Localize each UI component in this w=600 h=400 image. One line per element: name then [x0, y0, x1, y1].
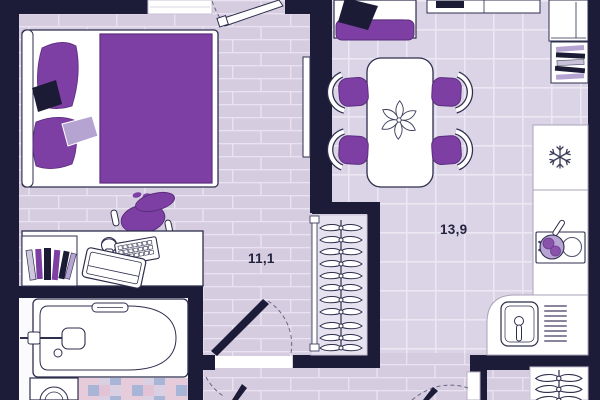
washing-machine	[30, 378, 78, 400]
burner	[563, 238, 582, 257]
wall-right	[588, 0, 600, 400]
dining-table	[367, 58, 433, 187]
wall-bathroom-top	[18, 286, 203, 298]
bathroom-checker-tiles	[76, 378, 188, 400]
bed-headboard	[22, 30, 33, 187]
wall-left	[0, 0, 19, 400]
wall-bathroom-right	[188, 286, 203, 400]
bathtub	[20, 299, 188, 377]
wall-room-divider	[310, 14, 332, 213]
wall-closet-right	[367, 202, 380, 368]
wall-top-left	[0, 0, 148, 14]
tv-icon	[436, 1, 464, 8]
room-area-label-11: 11,1	[248, 251, 275, 266]
bed-sheet-fold	[76, 33, 102, 184]
wall-closet-bottom	[293, 355, 379, 368]
coat-rack	[530, 367, 588, 400]
doorway-threshold	[215, 356, 292, 368]
bathtub-drain	[54, 349, 62, 357]
tv-stand	[427, 0, 540, 13]
hallway-closet	[310, 215, 367, 355]
sofa	[334, 0, 416, 40]
room-area-label-13: 13,9	[440, 222, 467, 237]
hall-door-panel	[467, 372, 480, 400]
closet-rail	[312, 222, 317, 348]
bed-blanket	[100, 34, 212, 183]
floor-plan-canvas: 11,1 13,9	[0, 0, 600, 400]
kitchen-sink-unit	[487, 295, 588, 355]
fridge	[533, 125, 588, 190]
sink-faucet	[515, 317, 524, 326]
wardrobe	[549, 0, 588, 41]
bookshelf	[551, 42, 588, 83]
wall-door-stub	[203, 355, 215, 370]
desk	[22, 231, 203, 289]
bed	[22, 30, 218, 187]
floor-plan: 11,1 13,9	[0, 0, 600, 400]
wall-mirror	[303, 57, 310, 157]
wall-top-mid	[285, 0, 332, 14]
